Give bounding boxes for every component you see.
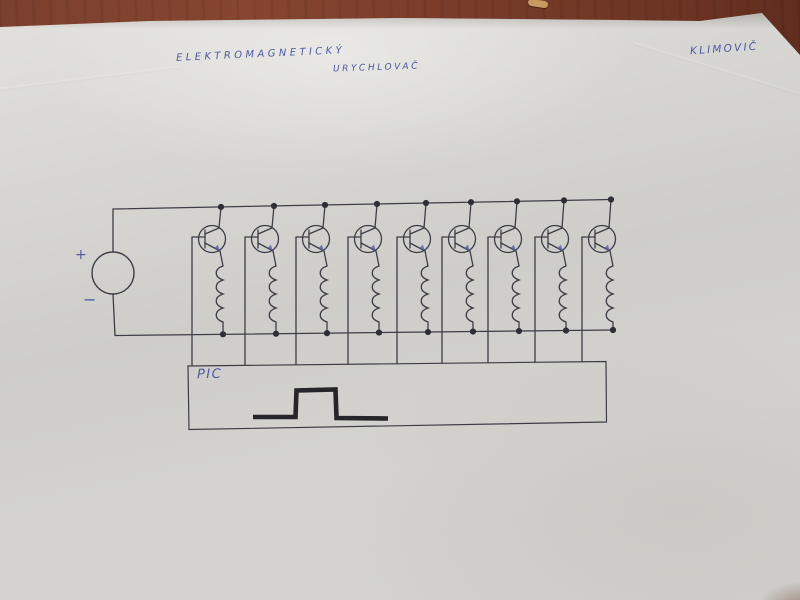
- transistor-stage-4: [348, 201, 382, 364]
- coil-4: [372, 266, 379, 333]
- bottom-junction-9: [610, 327, 616, 333]
- top-junction-7: [514, 198, 520, 204]
- top-junction-2: [271, 203, 277, 209]
- emitter-wire-6: [470, 251, 473, 266]
- top-junction-1: [218, 204, 224, 210]
- transistor-7: [495, 226, 522, 253]
- coil-9: [606, 266, 613, 330]
- pic-label: PIC: [197, 367, 223, 382]
- emitter-wire-1: [220, 251, 223, 266]
- bottom-junction-1: [220, 331, 226, 337]
- source-plus-label: +: [75, 247, 87, 263]
- transistor-stage-5: [397, 200, 431, 364]
- bottom-junction-5: [425, 329, 431, 335]
- collector-wire-6: [469, 202, 471, 228]
- top-junction-8: [561, 197, 567, 203]
- emitter-wire-2: [273, 251, 276, 266]
- coil-5: [421, 266, 428, 332]
- transistor-3: [303, 226, 330, 253]
- collector-wire-1: [219, 207, 221, 228]
- photo: ELEKTROMAGNETICKÝ URYCHLOVAČ KLIMOVIČ + …: [0, 0, 800, 600]
- collector-diag-3: [309, 228, 323, 234]
- transistor-stage-1: [192, 204, 226, 366]
- transistor-8: [542, 226, 569, 253]
- collector-wire-2: [272, 206, 274, 228]
- coil-7: [512, 266, 519, 331]
- collector-diag-5: [410, 228, 424, 234]
- pulse-waveform: [253, 390, 388, 419]
- collector-wire-9: [609, 200, 611, 229]
- paper-sheet: ELEKTROMAGNETICKÝ URYCHLOVAČ KLIMOVIČ + …: [0, 0, 800, 600]
- transistor-stage-6: [442, 199, 476, 363]
- transistor-stage-3: [296, 202, 330, 365]
- collector-wire-8: [562, 200, 564, 228]
- transistor-stage-7: [488, 198, 522, 363]
- transistor-stage-2: [245, 203, 279, 366]
- bottom-junction-4: [376, 329, 382, 335]
- top-junction-4: [374, 201, 380, 207]
- source-minus-label: −: [83, 290, 96, 309]
- coil-6: [466, 266, 473, 332]
- collector-wire-5: [424, 203, 426, 228]
- circuit-svg: [0, 0, 800, 600]
- source-bottom-wire: [113, 294, 115, 336]
- coil-8: [559, 266, 566, 331]
- collector-wire-3: [323, 205, 325, 228]
- bottom-junction-8: [563, 327, 569, 333]
- top-junction-6: [468, 199, 474, 205]
- collector-diag-9: [595, 228, 609, 234]
- emitter-wire-4: [376, 251, 379, 266]
- emitter-wire-9: [610, 251, 613, 266]
- bottom-junction-6: [470, 328, 476, 334]
- top-junction-9: [608, 196, 614, 202]
- collector-diag-2: [258, 228, 272, 234]
- emitter-wire-8: [563, 251, 566, 266]
- coil-3: [320, 266, 327, 333]
- coil-2: [269, 266, 276, 334]
- pic-box: [188, 362, 607, 430]
- collector-diag-6: [455, 228, 469, 234]
- collector-wire-4: [375, 204, 377, 228]
- transistor-stage-9: [582, 196, 616, 361]
- transistor-5: [404, 226, 431, 253]
- emitter-wire-5: [425, 251, 428, 266]
- emitter-wire-3: [324, 251, 327, 266]
- bottom-junction-7: [516, 328, 522, 334]
- bottom-rail: [115, 330, 613, 336]
- transistor-2: [252, 226, 279, 253]
- coil-1: [216, 266, 223, 334]
- transistor-6: [449, 226, 476, 253]
- collector-diag-4: [361, 228, 375, 234]
- top-junction-3: [322, 202, 328, 208]
- collector-diag-8: [548, 228, 562, 234]
- collector-wire-7: [515, 201, 517, 228]
- top-junction-5: [423, 200, 429, 206]
- emitter-wire-7: [516, 251, 519, 266]
- transistor-4: [355, 226, 382, 253]
- transistor-stage-8: [535, 197, 569, 362]
- collector-diag-1: [205, 228, 219, 234]
- collector-diag-7: [501, 228, 515, 234]
- power-source: [92, 252, 134, 294]
- bottom-junction-2: [273, 331, 279, 337]
- bottom-junction-3: [324, 330, 330, 336]
- top-rail: [113, 200, 611, 210]
- transistor-9: [589, 226, 616, 253]
- transistor-1: [199, 226, 226, 253]
